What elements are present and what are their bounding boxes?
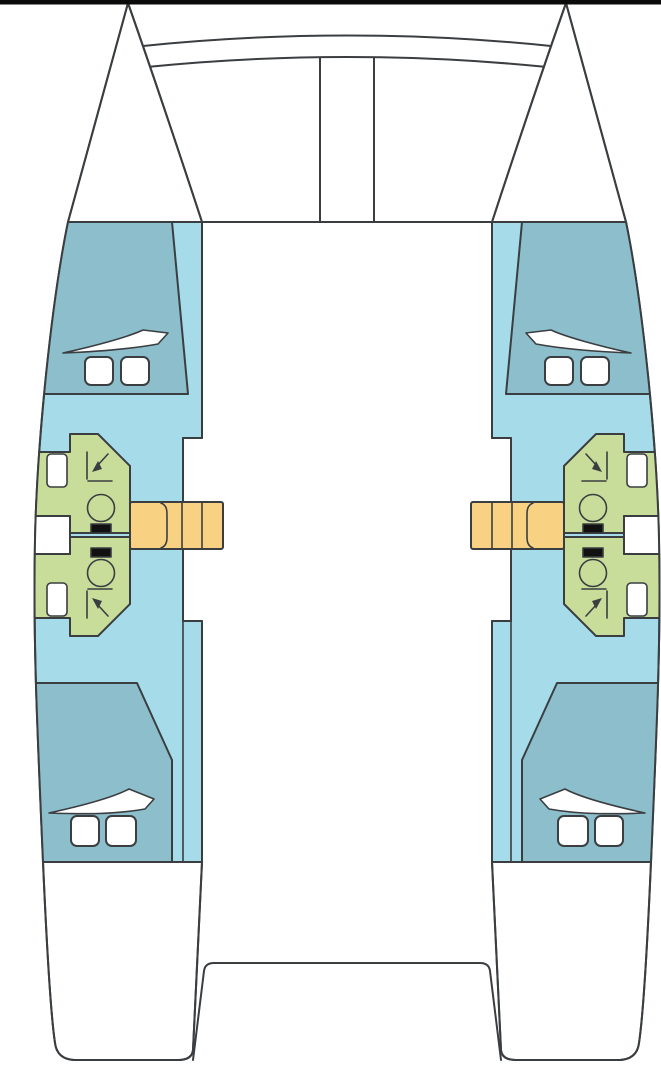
top-edge-bar bbox=[0, 0, 661, 5]
floorplan-svg bbox=[0, 0, 661, 1080]
catamaran-floorplan bbox=[0, 0, 661, 1080]
